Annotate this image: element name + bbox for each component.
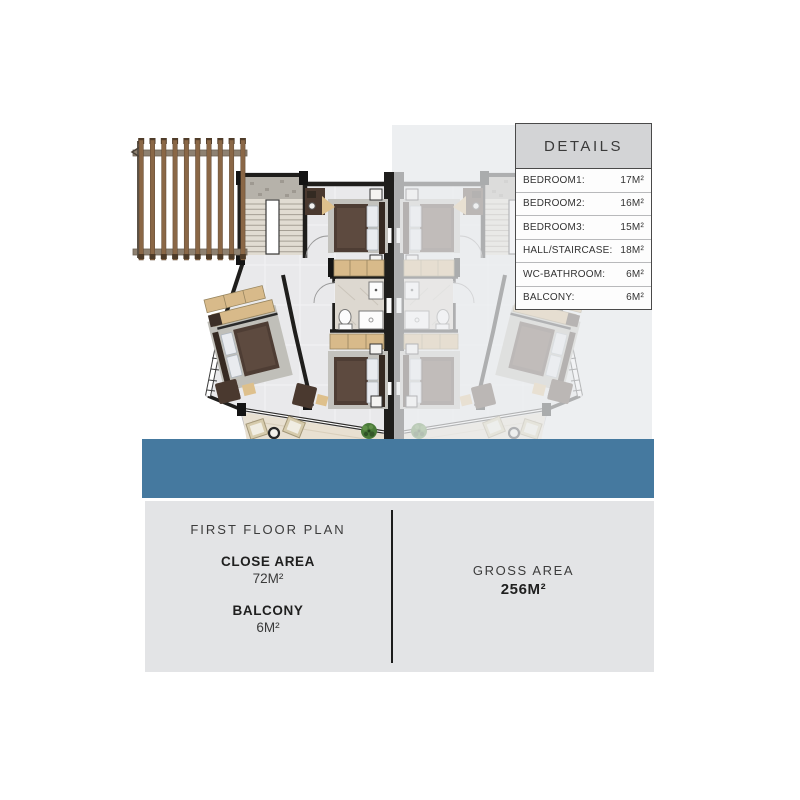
row-value: 6M² xyxy=(626,292,644,303)
gross-area-label: GROSS AREA xyxy=(393,563,654,578)
row-label: HALL/STAIRCASE: xyxy=(523,245,613,256)
gross-area-value: 256M² xyxy=(393,581,654,598)
table-row: BEDROOM3: 15M² xyxy=(516,216,651,240)
row-value: 15M² xyxy=(620,222,644,233)
details-table-title: DETAILS xyxy=(516,124,651,169)
pergola xyxy=(132,138,247,260)
page: DETAILS BEDROOM1: 17M² BEDROOM2: 16M² BE… xyxy=(0,0,800,800)
close-area-label: CLOSE AREA xyxy=(145,554,391,569)
row-label: BALCONY: xyxy=(523,292,575,303)
blue-band xyxy=(142,439,654,498)
row-value: 18M² xyxy=(620,245,644,256)
balcony-value: 6M² xyxy=(145,620,391,635)
row-label: BEDROOM2: xyxy=(523,198,585,209)
footer-left-column: FIRST FLOOR PLAN CLOSE AREA 72M² BALCONY… xyxy=(145,501,391,672)
details-table: DETAILS BEDROOM1: 17M² BEDROOM2: 16M² BE… xyxy=(515,123,652,310)
footer-panel: FIRST FLOOR PLAN CLOSE AREA 72M² BALCONY… xyxy=(145,501,654,672)
row-value: 6M² xyxy=(626,269,644,280)
row-value: 17M² xyxy=(620,175,644,186)
plan-title: FIRST FLOOR PLAN xyxy=(145,522,391,537)
row-value: 16M² xyxy=(620,198,644,209)
table-row: BALCONY: 6M² xyxy=(516,287,651,310)
floor-plan-graphic xyxy=(0,0,800,800)
table-row: HALL/STAIRCASE: 18M² xyxy=(516,240,651,264)
close-area-value: 72M² xyxy=(145,571,391,586)
balcony-label: BALCONY xyxy=(145,603,391,618)
row-label: BEDROOM1: xyxy=(523,175,585,186)
row-label: BEDROOM3: xyxy=(523,222,585,233)
table-row: BEDROOM1: 17M² xyxy=(516,169,651,193)
table-row: WC-BATHROOM: 6M² xyxy=(516,263,651,287)
footer-right-column: GROSS AREA 256M² xyxy=(393,501,654,672)
row-label: WC-BATHROOM: xyxy=(523,269,605,280)
table-row: BEDROOM2: 16M² xyxy=(516,193,651,217)
